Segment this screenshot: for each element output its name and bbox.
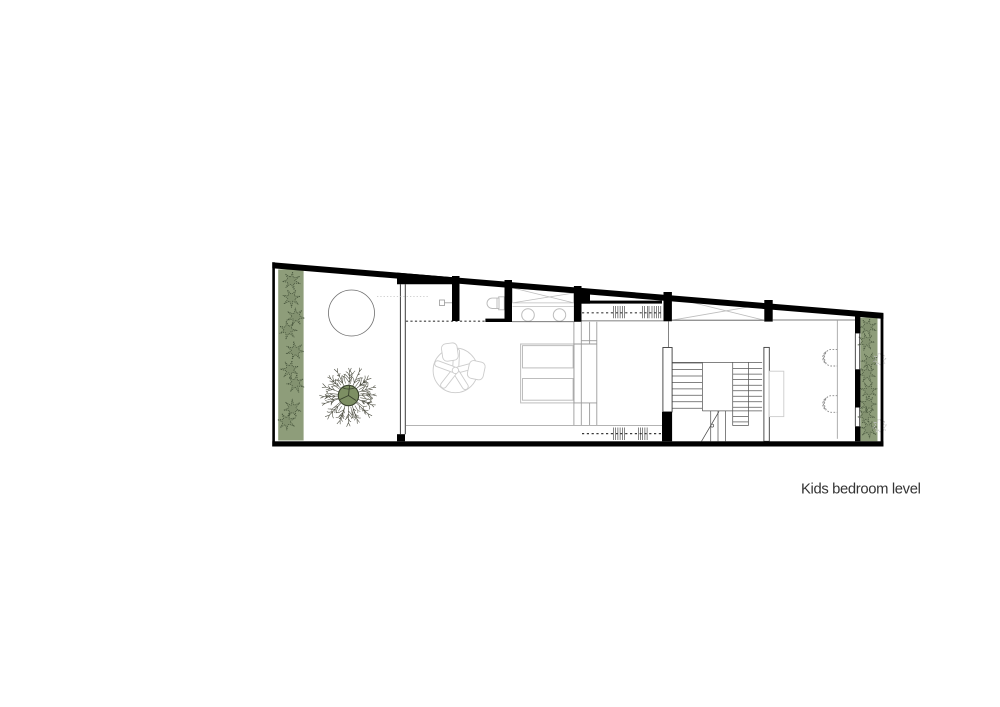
svg-text:Kids bedroom level: Kids bedroom level (801, 481, 921, 497)
